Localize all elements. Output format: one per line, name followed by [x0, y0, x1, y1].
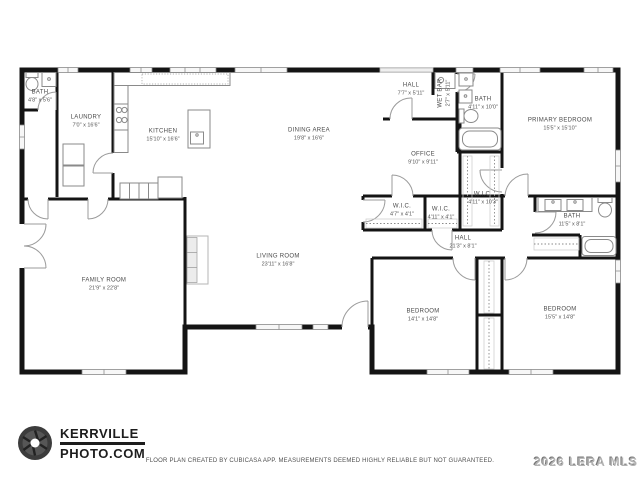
primary-toilet-icon — [459, 109, 478, 123]
mls-watermark: 2026 LERA MLS — [534, 455, 638, 469]
photographer-logo: KERRVILLE PHOTO.COM — [16, 424, 145, 462]
kitchen-island — [188, 110, 210, 148]
camera-aperture-icon — [16, 424, 54, 462]
hall-bathtub-icon — [582, 237, 616, 256]
floor-plan-page: BATH 4'8" x 5'6" LAUNDRY 7'0" x 16'6" KI… — [0, 0, 640, 480]
wet-bar-sink-icon — [435, 73, 455, 89]
sink-icon — [42, 73, 56, 87]
logo-kerrville: KERRVILLE — [60, 426, 145, 445]
fireplace-icon — [187, 236, 208, 284]
floor-plan-drawing — [0, 0, 640, 480]
primary-bathtub-icon — [459, 128, 501, 150]
hall-bath-vanity-icon — [538, 198, 592, 212]
hall-toilet-icon — [598, 198, 612, 218]
disclaimer-text: FLOOR PLAN CREATED BY CUBICASA APP. MEAS… — [120, 458, 520, 464]
stove-icon — [114, 104, 128, 130]
washer-dryer-icon — [63, 144, 84, 186]
toilet-icon — [26, 73, 38, 91]
